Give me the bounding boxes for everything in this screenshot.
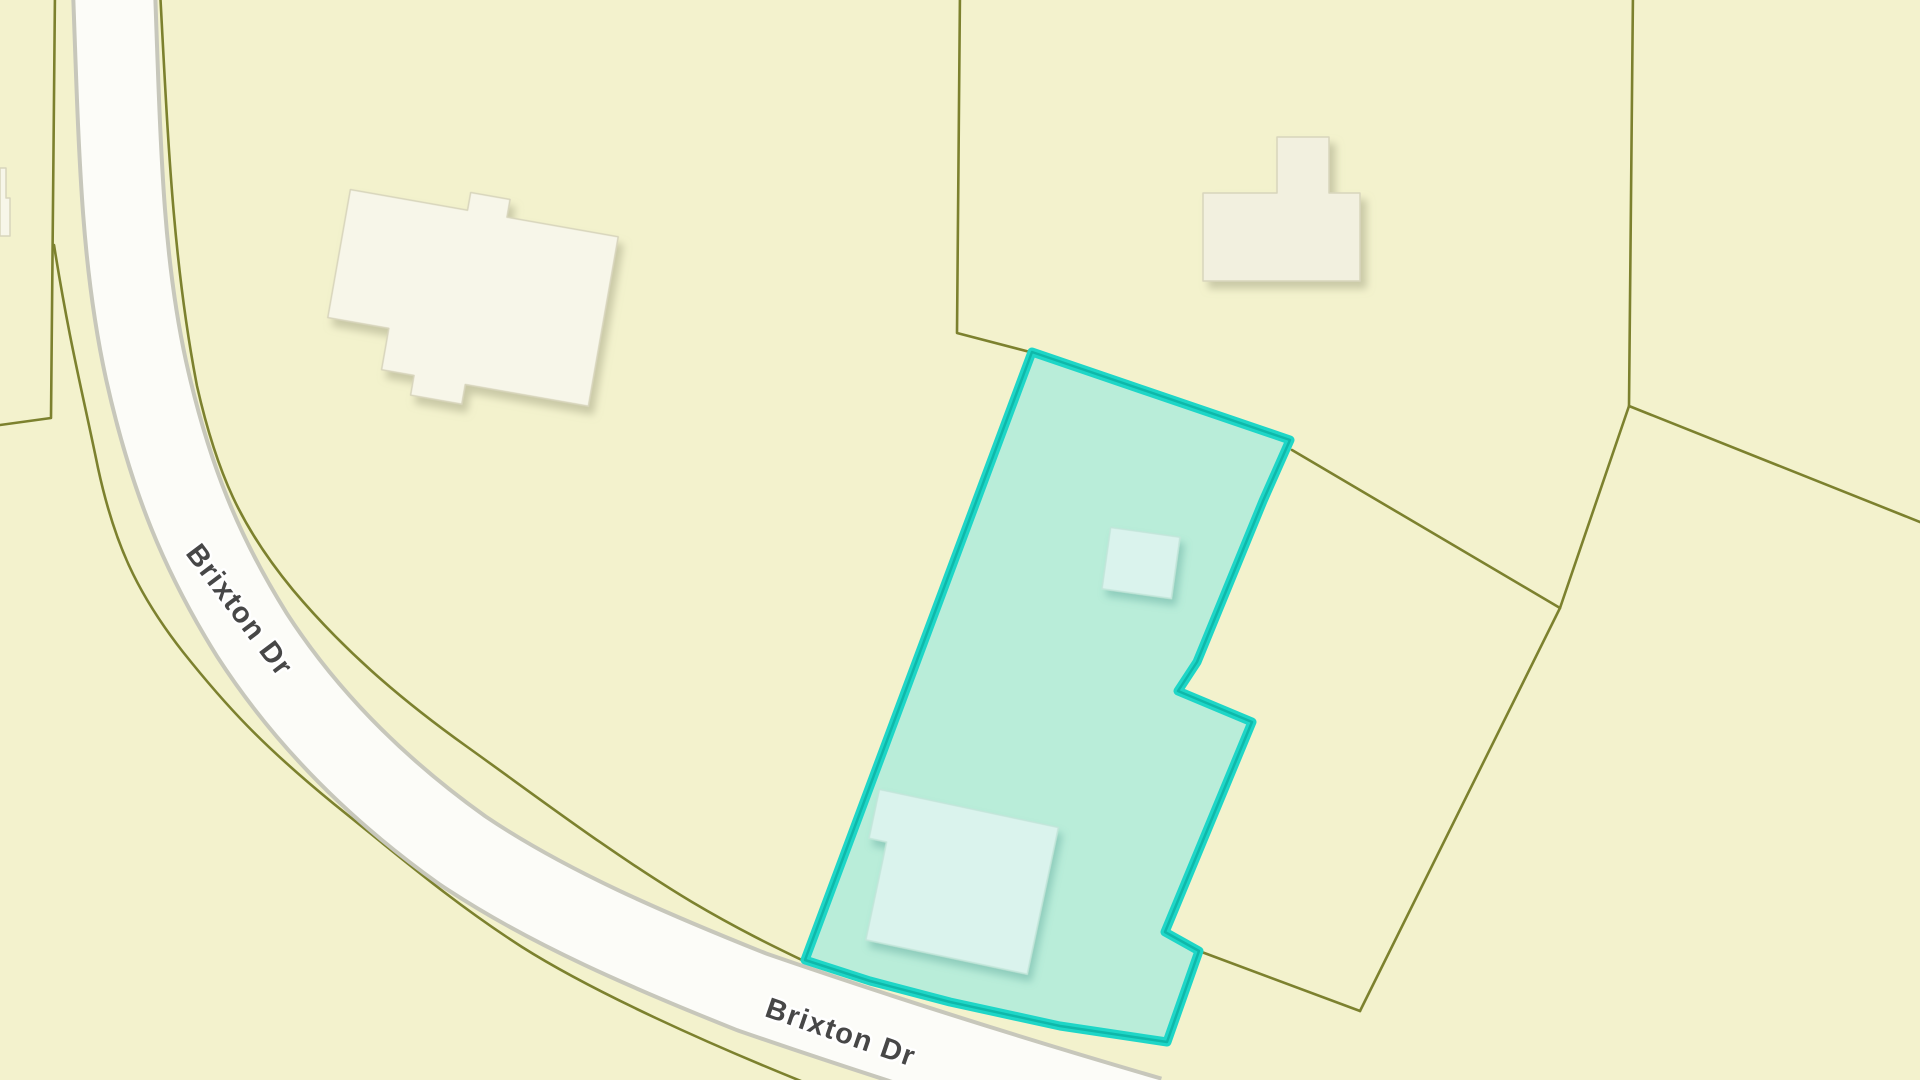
map-canvas[interactable]: Brixton Dr Brixton Dr bbox=[0, 0, 1920, 1080]
building-selected-shed bbox=[1102, 527, 1180, 598]
